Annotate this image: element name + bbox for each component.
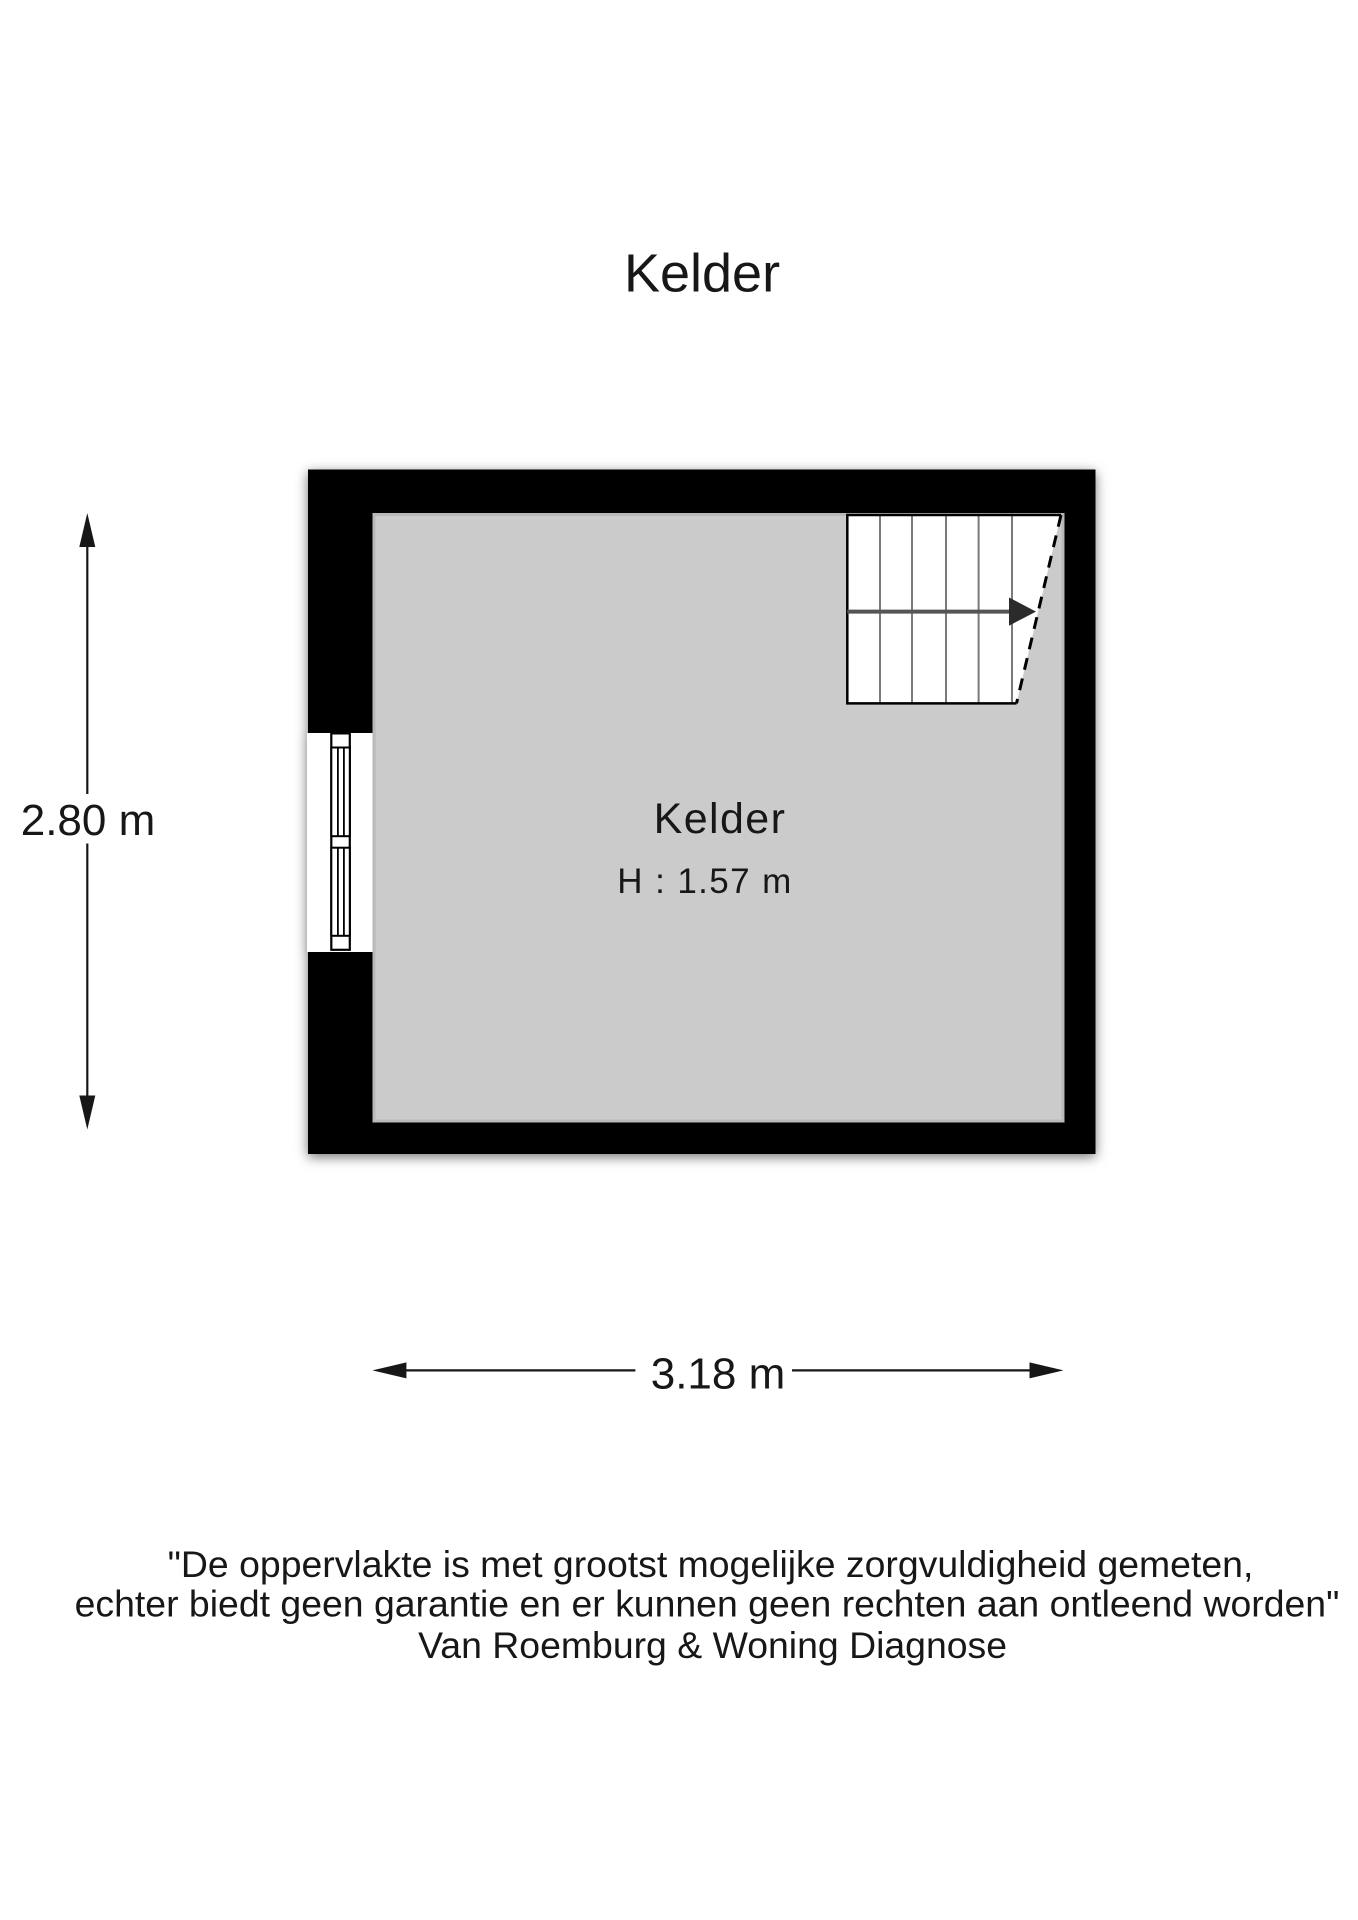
svg-text:H : 1.57 m: H : 1.57 m xyxy=(617,862,792,901)
svg-text:2.80 m: 2.80 m xyxy=(21,796,156,845)
svg-text:echter biedt geen garantie en: echter biedt geen garantie en er kunnen … xyxy=(75,1583,1340,1625)
svg-text:Van Roemburg & Woning Diagnose: Van Roemburg & Woning Diagnose xyxy=(418,1624,1007,1666)
svg-text:3.18 m: 3.18 m xyxy=(651,1349,786,1398)
svg-text:Kelder: Kelder xyxy=(654,795,787,843)
svg-text:"De oppervlakte is met grootst: "De oppervlakte is met grootst mogelijke… xyxy=(168,1543,1254,1585)
svg-text:Kelder: Kelder xyxy=(624,244,780,304)
